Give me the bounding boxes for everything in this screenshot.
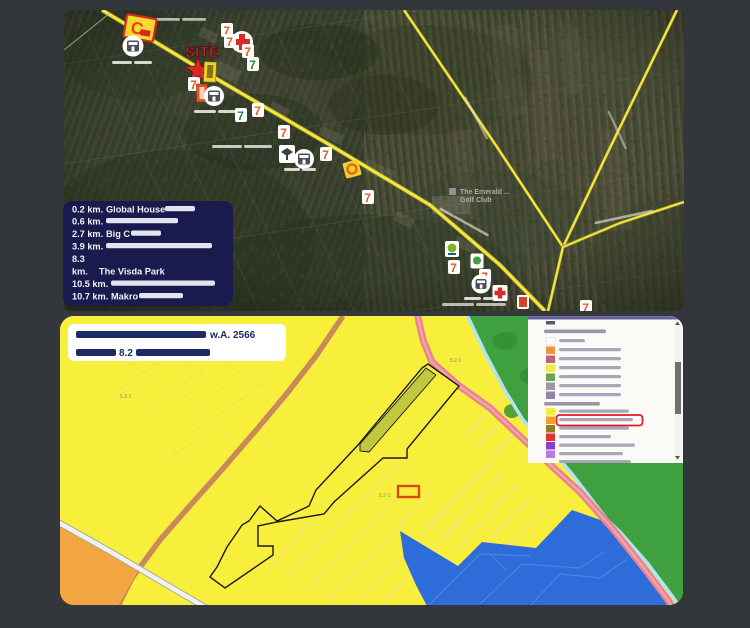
svg-text:w.A. 2566: w.A. 2566	[209, 330, 256, 341]
svg-text:Makro: Makro	[111, 292, 138, 302]
svg-text:5.3-1: 5.3-1	[120, 394, 132, 400]
svg-text:8.3: 8.3	[72, 254, 85, 264]
svg-text:5.2-1: 5.2-1	[450, 358, 462, 364]
svg-text:5.2-1: 5.2-1	[379, 493, 391, 499]
svg-text:SITE: SITE	[185, 45, 219, 61]
svg-text:8.2: 8.2	[119, 348, 133, 359]
svg-text:7: 7	[244, 45, 251, 59]
svg-text:0.6 km.: 0.6 km.	[72, 217, 103, 227]
svg-text:km.: km.	[72, 267, 88, 277]
svg-text:The Visda Park: The Visda Park	[99, 267, 166, 277]
svg-text:7: 7	[190, 78, 197, 92]
svg-text:Big C: Big C	[106, 229, 130, 239]
svg-text:7: 7	[582, 301, 589, 311]
svg-text:7: 7	[249, 58, 256, 72]
svg-text:Golf Club: Golf Club	[460, 197, 492, 204]
svg-text:7: 7	[237, 109, 244, 123]
svg-text:The Emerald ...: The Emerald ...	[460, 189, 510, 196]
svg-text:7: 7	[364, 191, 371, 205]
svg-text:3.9 km.: 3.9 km.	[72, 242, 103, 252]
svg-text:7: 7	[226, 35, 233, 49]
svg-text:0.2 km.: 0.2 km.	[72, 205, 103, 215]
svg-text:7: 7	[254, 104, 261, 118]
svg-text:Global House: Global House	[106, 205, 165, 215]
svg-text:2.7 km.: 2.7 km.	[72, 229, 103, 239]
svg-text:7: 7	[280, 126, 287, 140]
svg-text:7: 7	[450, 261, 457, 275]
svg-text:7: 7	[322, 148, 329, 162]
svg-text:10.5 km.: 10.5 km.	[72, 279, 108, 289]
svg-text:10.7 km.: 10.7 km.	[72, 292, 108, 302]
